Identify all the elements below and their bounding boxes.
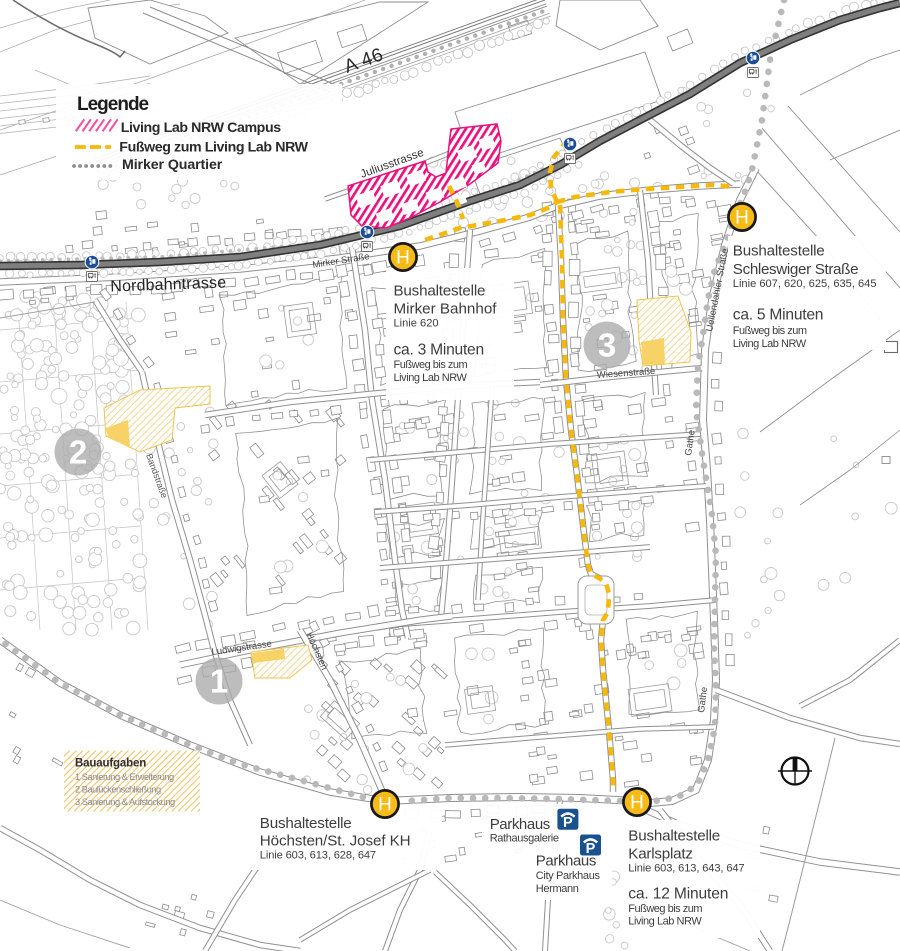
svg-text:Living Lab NRW: Living Lab NRW	[394, 372, 468, 384]
svg-text:Fußweg bis zum: Fußweg bis zum	[733, 325, 807, 337]
svg-text:ca. 3 Minuten: ca. 3 Minuten	[394, 342, 484, 359]
svg-text:2: 2	[69, 434, 87, 471]
svg-text:H: H	[630, 793, 644, 814]
svg-text:1 Sanierung & Erweiterung: 1 Sanierung & Erweiterung	[75, 772, 174, 782]
svg-text:Rathausgalerie: Rathausgalerie	[490, 832, 559, 844]
svg-text:H: H	[396, 248, 410, 269]
svg-text:H: H	[378, 795, 392, 816]
svg-text:Fußweg zum Living Lab NRW: Fußweg zum Living Lab NRW	[119, 139, 308, 155]
svg-text:2 Baulückenschließung: 2 Baulückenschließung	[75, 785, 161, 795]
svg-text:Linie 620: Linie 620	[394, 318, 439, 330]
svg-text:Parkhaus: Parkhaus	[490, 816, 550, 833]
svg-text:1: 1	[210, 663, 228, 700]
svg-text:Living Lab NRW: Living Lab NRW	[733, 338, 807, 350]
svg-text:Legende: Legende	[77, 94, 149, 115]
svg-text:Bushaltestelle: Bushaltestelle	[260, 815, 352, 832]
svg-text:P: P	[586, 841, 596, 857]
svg-text:City Parkhaus: City Parkhaus	[536, 870, 601, 882]
svg-text:H: H	[735, 208, 749, 229]
svg-text:Living Lab NRW Campus: Living Lab NRW Campus	[121, 120, 282, 136]
svg-text:Fußweg bis zum: Fußweg bis zum	[394, 359, 468, 371]
svg-text:3 Sanierung & Aufstockung: 3 Sanierung & Aufstockung	[75, 797, 175, 807]
svg-text:Bushaltestelle: Bushaltestelle	[628, 827, 720, 844]
svg-text:Linie 603, 613, 643, 647: Linie 603, 613, 643, 647	[628, 863, 744, 875]
svg-text:Mirker Quartier: Mirker Quartier	[122, 157, 223, 173]
svg-text:Mirker Bahnhof: Mirker Bahnhof	[394, 301, 498, 318]
svg-text:Karlsplatz: Karlsplatz	[628, 846, 692, 863]
svg-text:3: 3	[598, 327, 616, 364]
svg-text:Hermann: Hermann	[536, 883, 579, 895]
svg-text:Living Lab NRW: Living Lab NRW	[628, 916, 702, 928]
svg-text:Fußweg bis zum: Fußweg bis zum	[628, 903, 702, 915]
svg-text:Linie 607, 620, 625, 635, 645: Linie 607, 620, 625, 635, 645	[733, 278, 877, 290]
svg-text:ca. 5 Minuten: ca. 5 Minuten	[733, 307, 823, 324]
svg-text:ca. 12 Minuten: ca. 12 Minuten	[628, 885, 728, 902]
svg-text:Bushaltestelle: Bushaltestelle	[394, 283, 486, 300]
svg-text:Linie 603, 613, 628, 647: Linie 603, 613, 628, 647	[260, 850, 376, 862]
svg-text:Höchsten/St. Josef KH: Höchsten/St. Josef KH	[260, 833, 411, 850]
svg-text:Schleswiger Straße: Schleswiger Straße	[733, 261, 858, 278]
svg-text:Bushaltestelle: Bushaltestelle	[733, 243, 825, 260]
svg-text:P: P	[563, 815, 573, 831]
svg-text:Bauaufgaben: Bauaufgaben	[75, 758, 146, 770]
